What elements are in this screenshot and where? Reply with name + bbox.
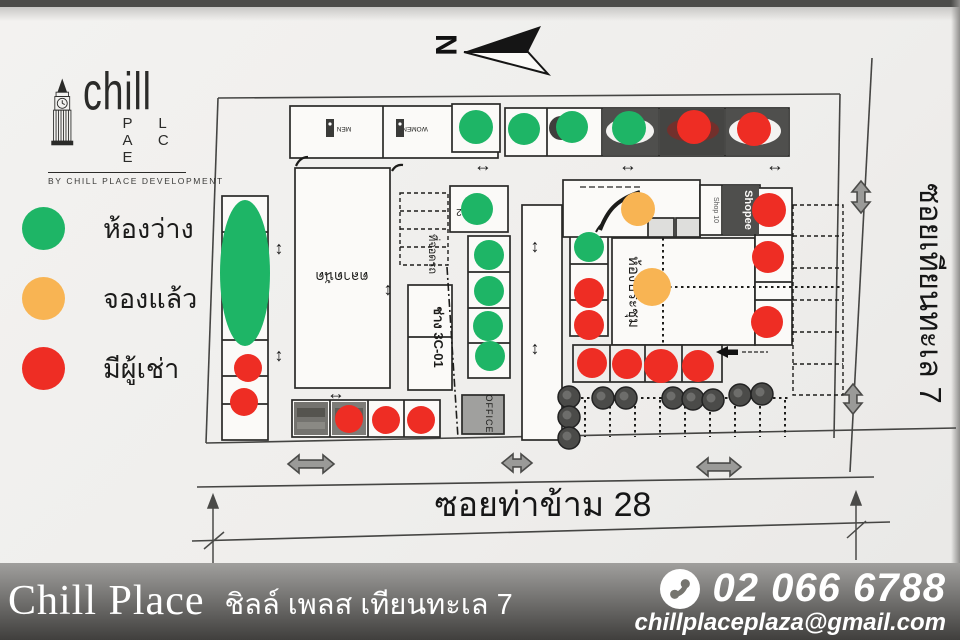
unit-status-dot-occupied bbox=[737, 112, 771, 146]
unit-status-dot-occupied bbox=[644, 349, 678, 383]
vacant-zone-layer bbox=[220, 200, 270, 346]
phone-icon bbox=[659, 568, 701, 610]
unit-status-dot-occupied bbox=[407, 406, 435, 434]
market-label: ตลาดนัด bbox=[315, 269, 368, 285]
unit-status-dot-occupied bbox=[335, 405, 363, 433]
site-plan: N ซอยท่าข้าม 28 ซอยเทียนทะเล 7 bbox=[0, 0, 960, 640]
vertical-arrow-icon: ↕ bbox=[531, 236, 540, 256]
unit-status-dot-vacant bbox=[612, 111, 646, 145]
tree-icon-highlight bbox=[667, 392, 676, 401]
vacant-zone-ellipse bbox=[220, 200, 270, 346]
footer-email: chillplaceplaza@gmail.com bbox=[634, 609, 946, 637]
vertical-arrow-icon: ↕ bbox=[275, 345, 284, 365]
unit-status-dot-occupied bbox=[230, 388, 258, 416]
men-restroom-label: MEN bbox=[336, 125, 351, 132]
tree-icon-highlight bbox=[597, 392, 606, 401]
road-direction-arrow-icon bbox=[844, 384, 862, 414]
svg-text:N: N bbox=[429, 34, 462, 56]
unit-status-dot-vacant bbox=[574, 232, 604, 262]
unit-status-dot-vacant bbox=[459, 110, 493, 144]
street-label-bottom: ซอยท่าข้าม 28 bbox=[435, 486, 652, 524]
road-direction-arrow-icon bbox=[502, 454, 532, 472]
tree-icon-highlight bbox=[756, 388, 765, 397]
unit-2-label: 2 bbox=[456, 206, 462, 217]
unit-status-dot-vacant bbox=[508, 113, 540, 145]
unit-status-dot-occupied bbox=[577, 348, 607, 378]
horizontal-arrow-icon: ↔ bbox=[474, 155, 492, 175]
parking-label: ที่จอดรถ bbox=[426, 234, 441, 274]
unit-status-dot-occupied bbox=[752, 193, 786, 227]
unit-status-dot-occupied bbox=[682, 350, 714, 382]
unit-status-dot-occupied bbox=[372, 406, 400, 434]
road-direction-arrow-icon bbox=[697, 458, 741, 476]
north-arrow-icon: N bbox=[429, 26, 548, 74]
vertical-arrow-icon: ↕ bbox=[531, 338, 540, 358]
horizontal-arrow-icon: ↔ bbox=[766, 155, 784, 175]
footer-bar: Chill Place ชิลล์ เพลส เทียนทะเล 7 02 06… bbox=[0, 563, 960, 640]
footer-brand: Chill Place bbox=[8, 577, 204, 625]
vertical-arrow-icon: ↕ bbox=[384, 279, 393, 299]
unit-status-dot-vacant bbox=[556, 111, 588, 143]
tree-icon-highlight bbox=[687, 393, 696, 402]
unit-status-dot-occupied bbox=[752, 241, 784, 273]
unit-status-dot-vacant bbox=[461, 193, 493, 225]
road-direction-arrow-icon bbox=[288, 455, 334, 473]
tree-icon-highlight bbox=[734, 389, 743, 398]
unit-status-dot-occupied bbox=[751, 306, 783, 338]
horizontal-arrow-icon: ↔ bbox=[327, 383, 345, 403]
footer-subtitle-thai: ชิลล์ เพลส เทียนทะเล 7 bbox=[224, 581, 512, 627]
shop10-label: Shop 10 bbox=[712, 197, 719, 223]
unit-status-dot-reserved bbox=[633, 268, 671, 306]
office-label: OFFICE bbox=[484, 395, 494, 434]
tree-icon-highlight bbox=[563, 391, 572, 400]
unit-status-dot-occupied bbox=[234, 354, 262, 382]
trees-layer bbox=[558, 383, 773, 449]
footer-phone-number: 02 066 6788 bbox=[713, 566, 946, 611]
unit-status-dot-occupied bbox=[574, 310, 604, 340]
tree-icon-highlight bbox=[563, 411, 572, 420]
road-direction-arrow-icon bbox=[852, 181, 870, 213]
unit-status-dot-vacant bbox=[475, 341, 505, 371]
unit-status-dot-vacant bbox=[474, 276, 504, 306]
unit-status-dot-vacant bbox=[474, 240, 504, 270]
scanned-site-plan-flyer: chill P L A C E BY CHILL PLACE DEVELOPME… bbox=[0, 0, 960, 640]
vertical-arrow-icon: ↕ bbox=[275, 238, 284, 258]
unit-status-dot-occupied bbox=[574, 278, 604, 308]
unit-status-dot-occupied bbox=[612, 349, 642, 379]
workshop-label: ช่าง 3C-01 bbox=[431, 306, 446, 368]
women-restroom-label: WOMEN bbox=[402, 125, 428, 132]
tree-icon-highlight bbox=[707, 394, 716, 403]
unit-status-dot-reserved bbox=[621, 192, 655, 226]
tree-icon-highlight bbox=[620, 392, 629, 401]
tree-icon-highlight bbox=[563, 432, 572, 441]
unit-status-dot-vacant bbox=[473, 311, 503, 341]
unit-status-dot-occupied bbox=[677, 110, 711, 144]
street-label-right: ซอยเทียนทะเล 7 bbox=[913, 183, 948, 404]
horizontal-arrow-icon: ↔ bbox=[619, 155, 637, 175]
